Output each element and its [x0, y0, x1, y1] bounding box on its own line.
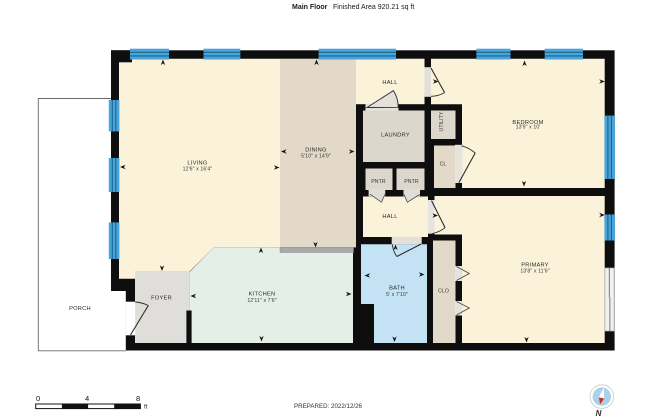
svg-text:BATH: BATH [389, 286, 405, 292]
svg-text:FOYER: FOYER [151, 296, 172, 302]
svg-text:N: N [596, 409, 602, 416]
svg-text:12'11" x 7'6": 12'11" x 7'6" [247, 298, 276, 304]
svg-text:0: 0 [36, 394, 40, 403]
svg-text:ft: ft [144, 404, 148, 411]
svg-text:HALL: HALL [382, 80, 397, 86]
svg-text:PNTR: PNTR [404, 179, 419, 185]
svg-text:Finished Area 920.21 sq ft: Finished Area 920.21 sq ft [333, 4, 414, 11]
svg-text:Main Floor: Main Floor [292, 4, 328, 11]
svg-text:13'8" x 11'6": 13'8" x 11'6" [520, 269, 549, 275]
svg-text:HALL: HALL [382, 214, 397, 220]
svg-text:CL: CL [440, 162, 447, 168]
svg-text:4: 4 [85, 394, 89, 403]
svg-text:5' x 7'10": 5' x 7'10" [386, 292, 408, 298]
svg-text:KITCHEN: KITCHEN [249, 292, 276, 298]
svg-text:8: 8 [136, 394, 140, 403]
svg-text:PNTR: PNTR [371, 179, 386, 185]
svg-text:CLO: CLO [438, 289, 449, 295]
svg-text:PORCH: PORCH [69, 306, 91, 312]
svg-text:UTILITY: UTILITY [439, 111, 445, 131]
svg-text:LAUNDRY: LAUNDRY [381, 133, 410, 139]
svg-text:13'9" x 10': 13'9" x 10' [516, 124, 541, 130]
svg-text:PREPARED: 2022/12/26: PREPARED: 2022/12/26 [294, 403, 363, 410]
svg-text:12'6" x 16'4": 12'6" x 16'4" [183, 167, 213, 173]
svg-text:5'10" x 14'9": 5'10" x 14'9" [301, 154, 331, 160]
